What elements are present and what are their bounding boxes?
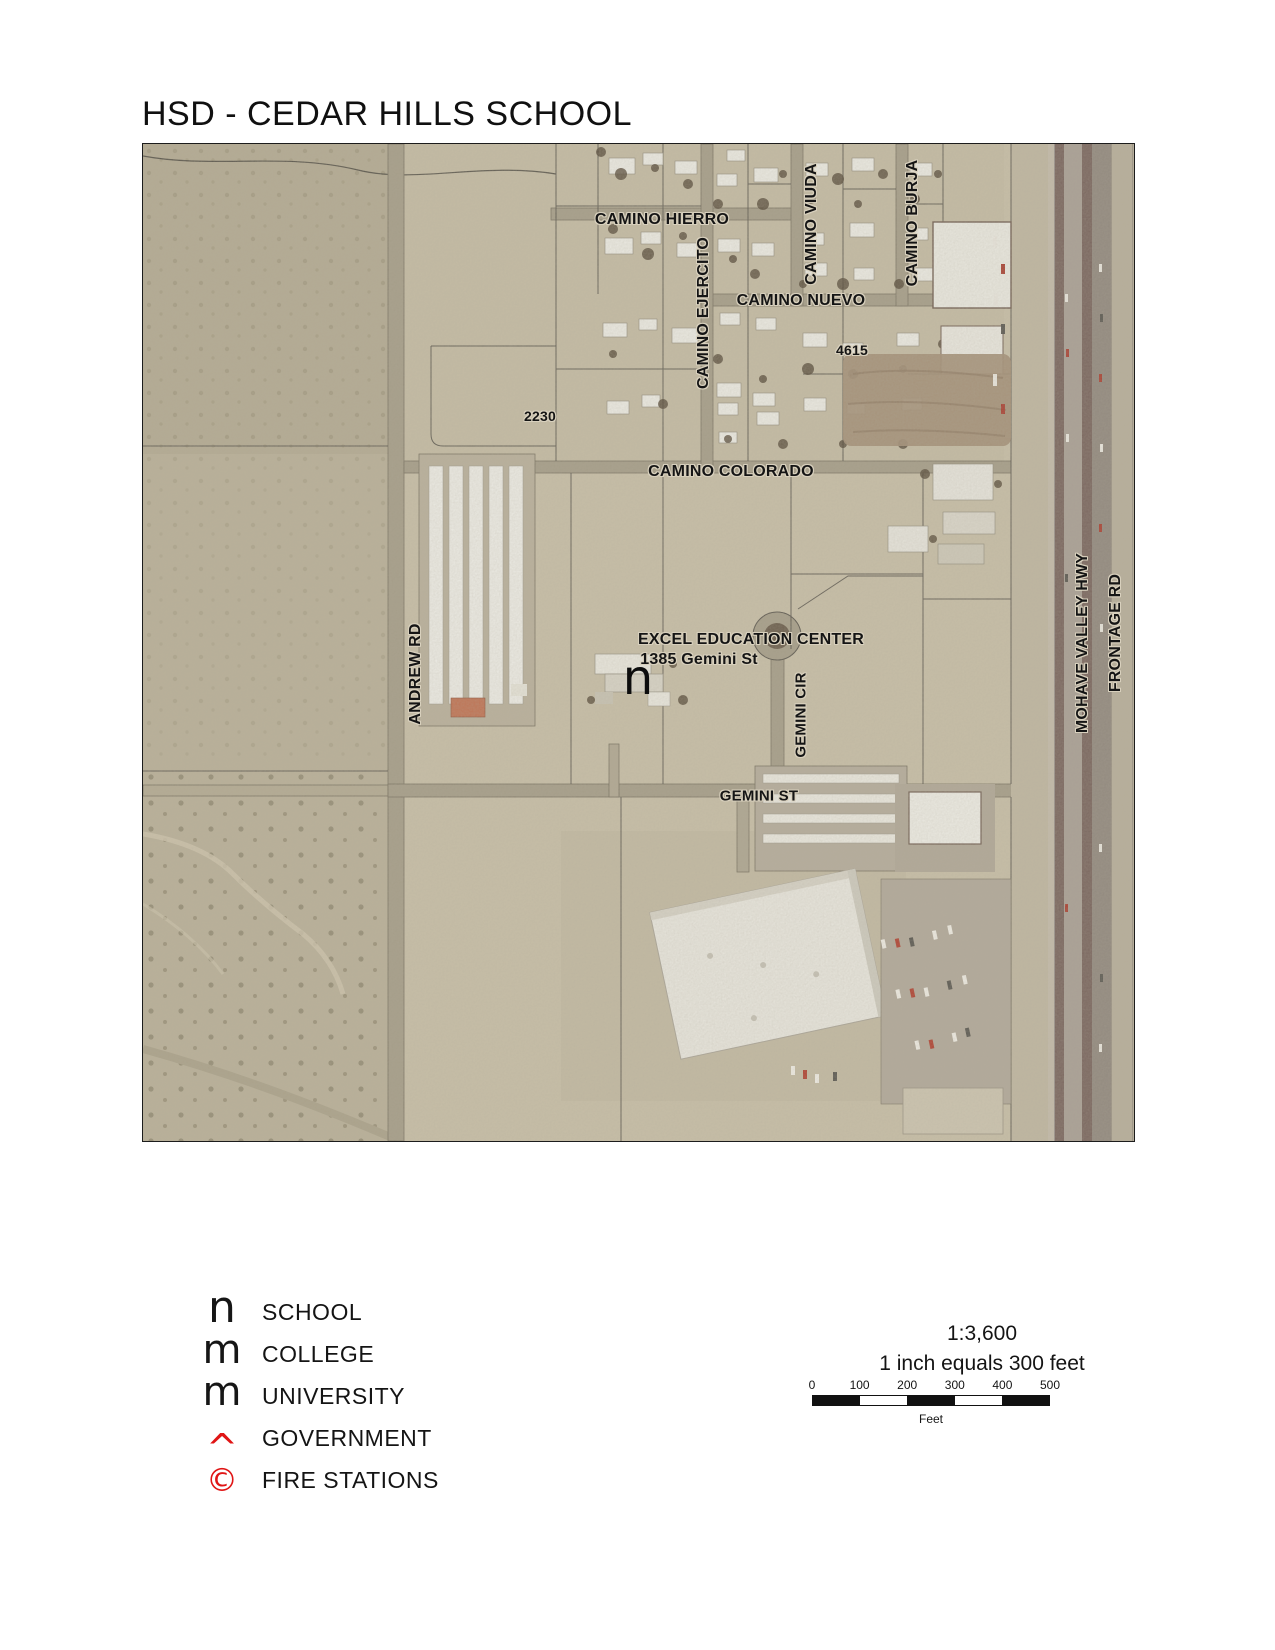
school-symbol: n — [623, 654, 653, 702]
scale-tick-300: 300 — [945, 1378, 965, 1392]
1385-gemini-st-label: 1385 Gemini St — [640, 651, 758, 669]
school-symbol-icon: n — [190, 1286, 254, 1330]
gemini-cir-label: GEMINI CIR — [793, 672, 810, 757]
frontage-rd-label: FRONTAGE RD — [1107, 574, 1125, 692]
scale-tick-labels: 0100200300400500 — [812, 1378, 1050, 1392]
legend-label: FIRE STATIONS — [262, 1467, 439, 1494]
college-symbol-icon: m — [190, 1330, 254, 1370]
scale-tick-400: 400 — [992, 1378, 1012, 1392]
legend-label: COLLEGE — [262, 1341, 374, 1368]
scale-bar-segment — [859, 1396, 906, 1405]
camino-viuda-label: CAMINO VIUDA — [803, 163, 821, 285]
scale-unit: Feet — [812, 1412, 1050, 1426]
fire-stations-symbol-icon: © — [190, 1464, 254, 1496]
page-title: HSD - CEDAR HILLS SCHOOL — [142, 95, 632, 134]
legend-item-university: mUNIVERSITY — [190, 1375, 439, 1417]
2230-label: 2230 — [524, 408, 556, 424]
scale-bar-segment — [954, 1396, 1001, 1405]
university-symbol-icon: m — [190, 1372, 254, 1412]
map-frame: CAMINO HIERROCAMINO EJERCITOCAMINO VIUDA… — [142, 143, 1135, 1142]
legend-item-government: ^GOVERNMENT — [190, 1417, 439, 1459]
scale-tick-200: 200 — [897, 1378, 917, 1392]
legend-item-fire-stations: ©FIRE STATIONS — [190, 1459, 439, 1501]
scale-tick-0: 0 — [809, 1378, 816, 1392]
excel-education-center-label: EXCEL EDUCATION CENTER — [638, 631, 864, 649]
legend-label: SCHOOL — [262, 1299, 362, 1326]
scale-bar-segment — [907, 1396, 954, 1405]
camino-colorado-label: CAMINO COLORADO — [648, 463, 814, 481]
scale-bar-segment — [1002, 1396, 1049, 1405]
camino-burja-label: CAMINO BURJA — [904, 160, 922, 287]
map-labels-layer: CAMINO HIERROCAMINO EJERCITOCAMINO VIUDA… — [143, 144, 1134, 1141]
scale-tick-100: 100 — [850, 1378, 870, 1392]
scale-tick-500: 500 — [1040, 1378, 1060, 1392]
gemini-st-label: GEMINI ST — [720, 788, 798, 805]
camino-ejercito-label: CAMINO EJERCITO — [695, 237, 713, 389]
scale-bar-segment — [813, 1396, 859, 1405]
legend: nSCHOOLmCOLLEGEmUNIVERSITY^GOVERNMENT©FI… — [190, 1291, 439, 1501]
4615-label: 4615 — [836, 342, 868, 358]
legend-label: UNIVERSITY — [262, 1383, 405, 1410]
camino-hierro-label: CAMINO HIERRO — [595, 211, 729, 229]
mohave-valley-hwy-label: MOHAVE VALLEY HWY — [1074, 553, 1092, 733]
scale-bar — [812, 1395, 1050, 1406]
camino-nuevo-label: CAMINO NUEVO — [737, 292, 866, 310]
scale-ratio: 1:3,600 — [870, 1322, 1094, 1346]
page: HSD - CEDAR HILLS SCHOOL — [0, 0, 1275, 1650]
legend-label: GOVERNMENT — [262, 1425, 432, 1452]
andrew-rd-label: ANDREW RD — [407, 623, 425, 724]
scale-equivalence: 1 inch equals 300 feet — [830, 1352, 1134, 1376]
